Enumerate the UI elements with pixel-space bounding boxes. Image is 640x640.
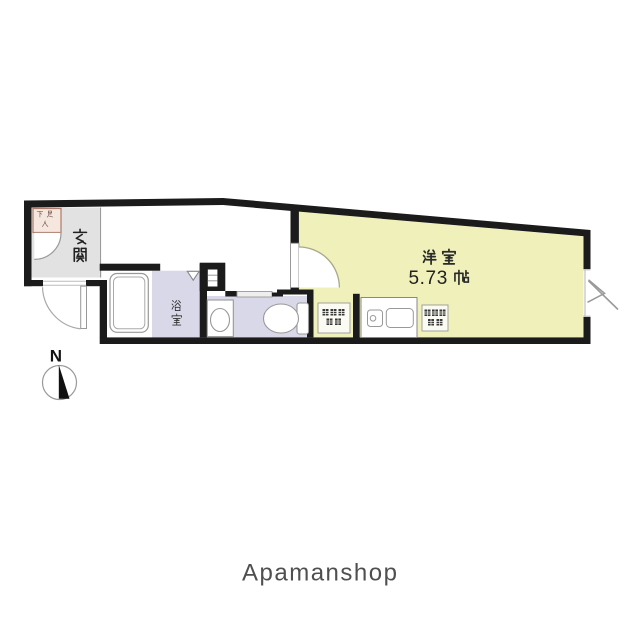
svg-text:Apamanshop: Apamanshop: [242, 560, 398, 587]
svg-text:N: N: [50, 347, 62, 366]
svg-text:5.73: 5.73: [409, 268, 448, 289]
